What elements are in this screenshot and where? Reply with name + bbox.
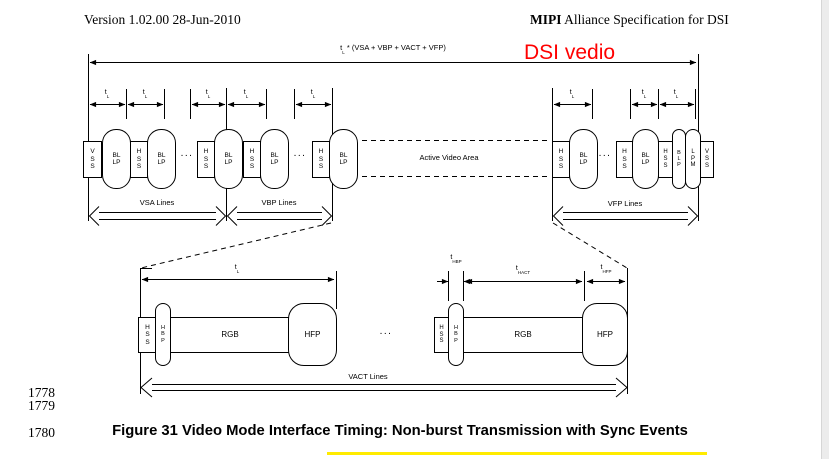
line-pill-hfp: HFP xyxy=(582,303,628,366)
lane-state-pill-blp: BL LP xyxy=(102,129,131,189)
tl-label: tL xyxy=(206,89,210,99)
lane-state-box-hss: H S S xyxy=(658,141,673,178)
tl-label: tL xyxy=(244,89,248,99)
document-page: Version 1.02.00 28-Jun-2010 MIPI Allianc… xyxy=(0,0,829,459)
tl-label: tL xyxy=(642,89,646,99)
line-number: 1779 xyxy=(28,398,55,414)
line-box-hss: H S S xyxy=(434,317,449,353)
vsa-lines-label: VSA Lines xyxy=(140,198,175,207)
highlight-bar xyxy=(327,452,707,455)
lane-state-box-hss: H S S xyxy=(243,141,261,178)
thbp-label: tHBP xyxy=(450,254,461,264)
line-pill-hbp: H B P xyxy=(448,303,464,366)
lane-state-pill-blp: BL LP xyxy=(214,129,243,189)
active-video-area-label: Active Video Area xyxy=(419,153,478,162)
tl-label: tL xyxy=(105,89,109,99)
vbp-lines-label: VBP Lines xyxy=(262,198,297,207)
tl-label: tL xyxy=(570,89,574,99)
lane-state-pill-blp-narrow: B L P xyxy=(672,129,686,189)
line-box-rgb: RGB xyxy=(170,317,290,353)
figure-caption: Figure 31 Video Mode Interface Timing: N… xyxy=(60,423,740,439)
ellipsis: ... xyxy=(380,326,393,337)
vact-lines-label: VACT Lines xyxy=(348,372,387,381)
vfp-lines-label: VFP Lines xyxy=(608,199,642,208)
lane-state-box-hss: H S S xyxy=(616,141,633,178)
tl-label: tL xyxy=(311,89,315,99)
lane-state-box-hss: H S S xyxy=(312,141,330,178)
lane-state-pill-blp: BL LP xyxy=(147,129,176,189)
thfp-label: tHFP xyxy=(601,264,612,274)
tl-label: tL xyxy=(674,89,678,99)
line-box-rgb: RGB xyxy=(463,317,583,353)
lane-state-pill-blp: BL LP xyxy=(569,129,598,189)
timing-diagram-lines xyxy=(0,0,829,459)
line-number: 1780 xyxy=(28,425,55,441)
ellipsis: ... xyxy=(294,148,307,159)
lane-state-box-vss: V S S xyxy=(83,141,102,178)
lane-state-pill-blp: BL LP xyxy=(632,129,659,189)
tl-label: tL xyxy=(235,264,239,274)
lane-state-pill-blp: BL LP xyxy=(260,129,289,189)
frame-period-formula: tL * (VSA + VBP + VACT + VFP) xyxy=(340,43,446,54)
lane-state-pill-blp: BL LP xyxy=(329,129,358,189)
thact-label: tHACT xyxy=(516,265,530,275)
lane-state-box-hss: H S S xyxy=(552,141,570,178)
lane-state-box-hss: H S S xyxy=(130,141,148,178)
lane-state-box-vss: V S S xyxy=(700,141,714,178)
ellipsis: ... xyxy=(181,148,194,159)
tl-label: tL xyxy=(143,89,147,99)
lane-state-pill-lpm: L P M xyxy=(685,129,701,189)
ellipsis: ... xyxy=(599,148,612,159)
line-pill-hbp: H B P xyxy=(155,303,171,366)
lane-state-box-hss: H S S xyxy=(197,141,215,178)
line-pill-hfp: HFP xyxy=(288,303,337,366)
page-edge-strip xyxy=(821,0,829,459)
